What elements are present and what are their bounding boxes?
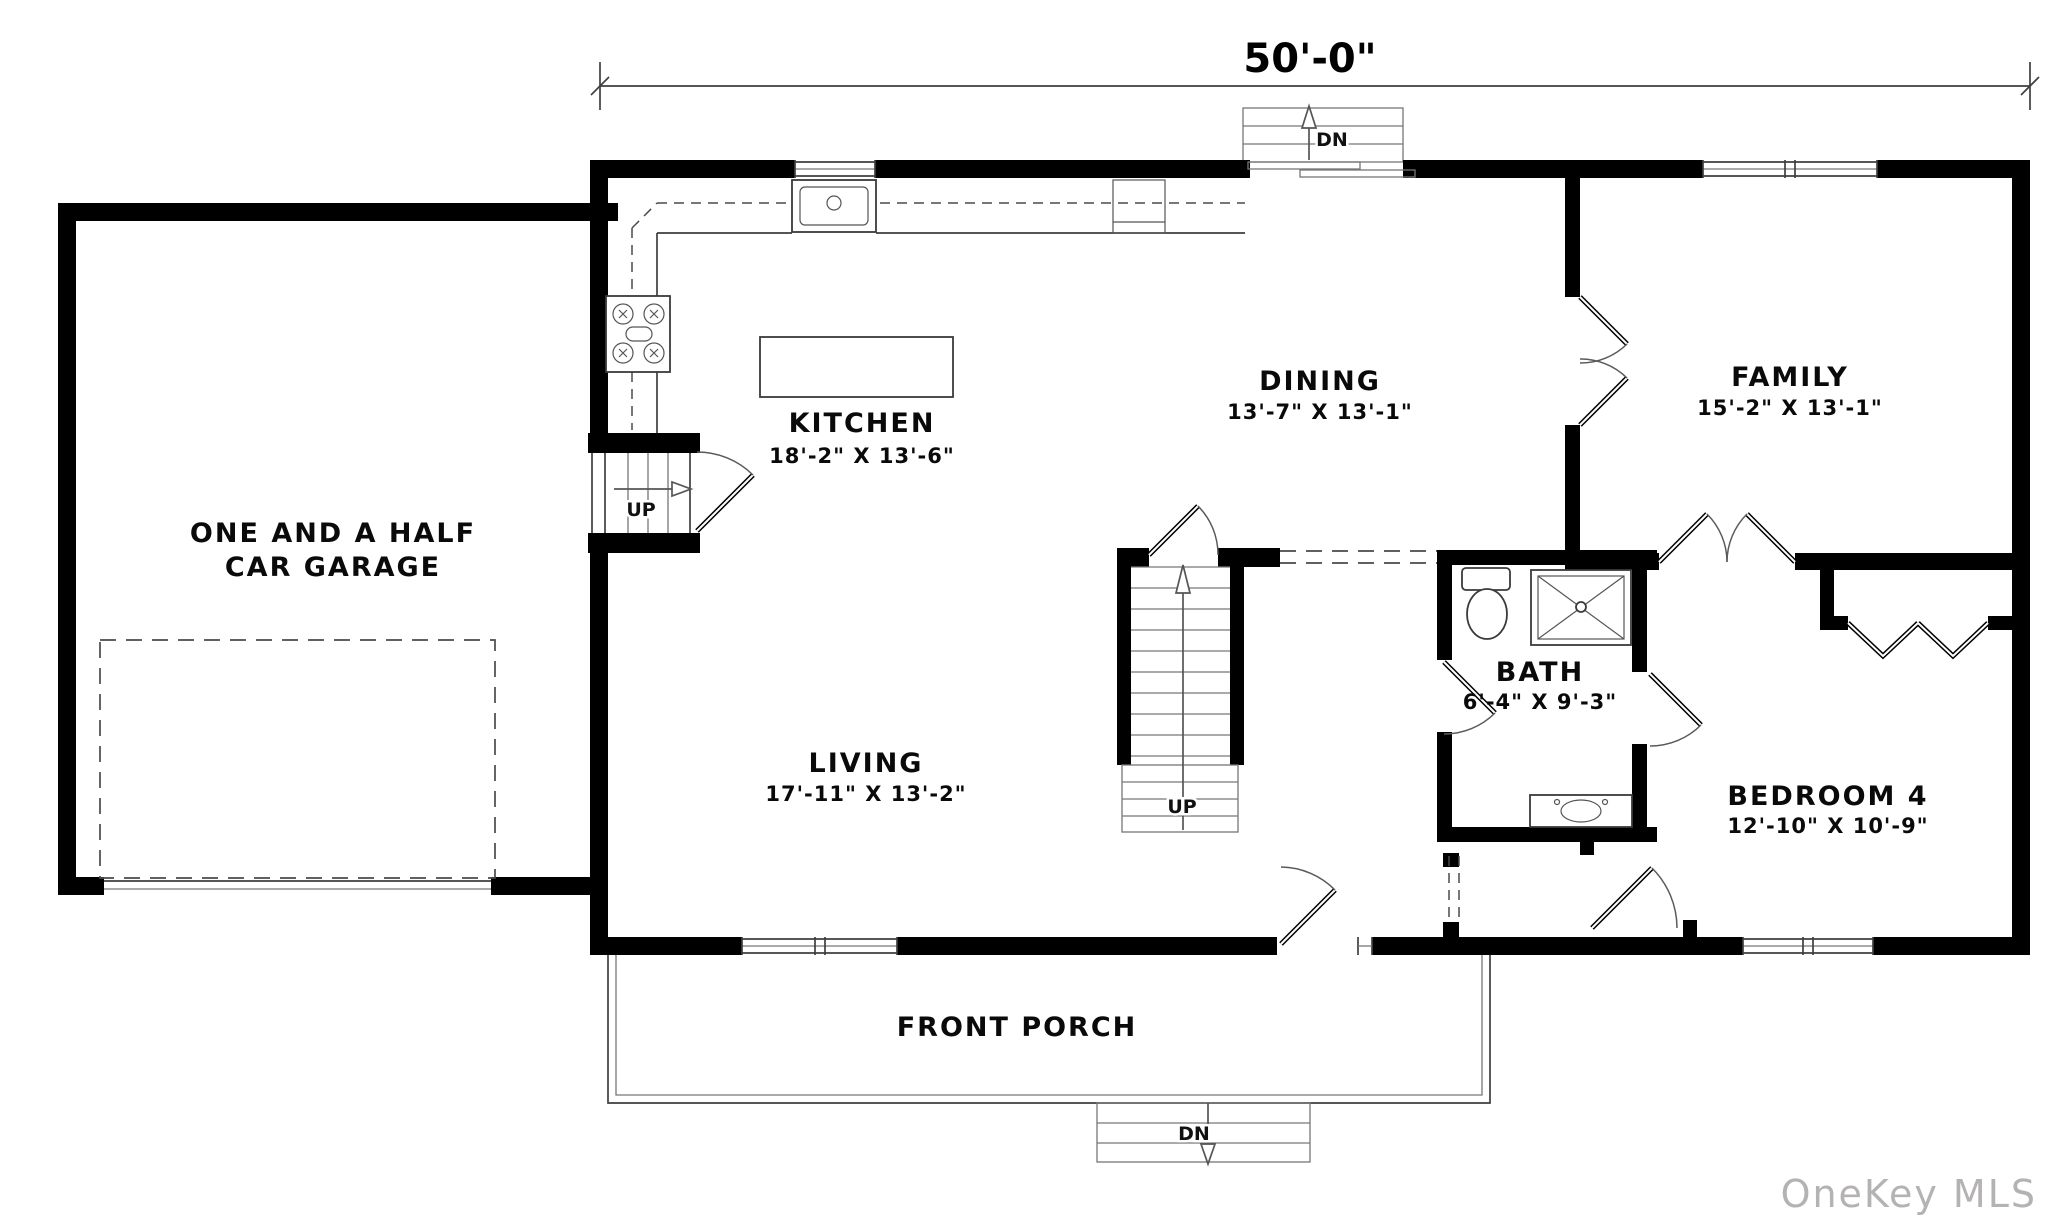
room-label-bath: BATH <box>1496 657 1584 688</box>
floor-plan-drawing: 50'-0" DN <box>0 0 2048 1221</box>
stair-label-up-garage: UP <box>626 499 655 521</box>
floor-plan: 50'-0" DN <box>0 0 2048 1221</box>
room-dims-bath: 6'-4" X 9'-3" <box>1463 690 1617 714</box>
room-dims-living: 17'-11" X 13'-2" <box>765 782 966 806</box>
room-dims-family: 15'-2" X 13'-1" <box>1697 396 1883 420</box>
kitchen-counters <box>632 203 1245 433</box>
watermark: OneKey MLS <box>1781 1172 2037 1216</box>
bedroom-side-door <box>1650 674 1701 746</box>
bath-vanity <box>1530 795 1632 827</box>
garage-landing-window <box>590 452 608 537</box>
room-dims-bedroom4: 12'-10" X 10'-9" <box>1727 814 1928 838</box>
sliding-back-door <box>1248 162 1415 177</box>
dimension-label: 50'-0" <box>1243 36 1376 82</box>
garage-walls <box>58 203 618 895</box>
stair-label-up-main: UP <box>1167 796 1196 818</box>
front-porch: DN <box>608 955 1490 1164</box>
room-dims-kitchen: 18'-2" X 13'-6" <box>769 444 955 468</box>
stair-label-dn-back: DN <box>1316 129 1348 151</box>
garage-steps: UP <box>614 452 753 533</box>
bath-shower <box>1531 570 1631 645</box>
bath-toilet <box>1462 568 1510 639</box>
range-stove <box>606 296 670 372</box>
bedroom-window <box>1743 937 1873 955</box>
room-label-garage-line1: ONE AND A HALF <box>190 518 476 549</box>
porch-steps: DN <box>1097 1103 1310 1164</box>
back-stoop: DN <box>1243 106 1403 162</box>
kitchen-window <box>795 160 875 178</box>
room-label-dining: DINING <box>1259 366 1381 397</box>
closet-bifold-doors <box>1848 623 1988 656</box>
family-window <box>1703 160 1877 178</box>
front-door <box>1281 867 1335 944</box>
room-dims-dining: 13'-7" X 13'-1" <box>1227 400 1413 424</box>
kitchen-island <box>760 337 953 397</box>
room-label-living: LIVING <box>809 748 924 779</box>
stair-label-dn-front: DN <box>1178 1123 1210 1145</box>
garage-pad-dashed-outline <box>100 640 495 878</box>
room-label-family: FAMILY <box>1731 362 1849 393</box>
bedroom-entry-door <box>1592 868 1677 928</box>
overall-dimension: 50'-0" <box>591 36 2039 110</box>
room-label-garage-line2: CAR GARAGE <box>225 552 441 583</box>
front-door-sidelite <box>1358 937 1372 955</box>
room-label-kitchen: KITCHEN <box>789 408 936 439</box>
cased-openings <box>1280 551 1459 922</box>
room-label-porch: FRONT PORCH <box>897 1012 1138 1043</box>
dishwasher <box>1113 180 1165 233</box>
room-label-bedroom4: BEDROOM 4 <box>1727 781 1928 812</box>
family-bedroom-french-door <box>1659 514 1795 562</box>
kitchen-sink <box>792 180 876 232</box>
dining-family-double-door <box>1580 297 1627 425</box>
living-window <box>742 937 897 955</box>
